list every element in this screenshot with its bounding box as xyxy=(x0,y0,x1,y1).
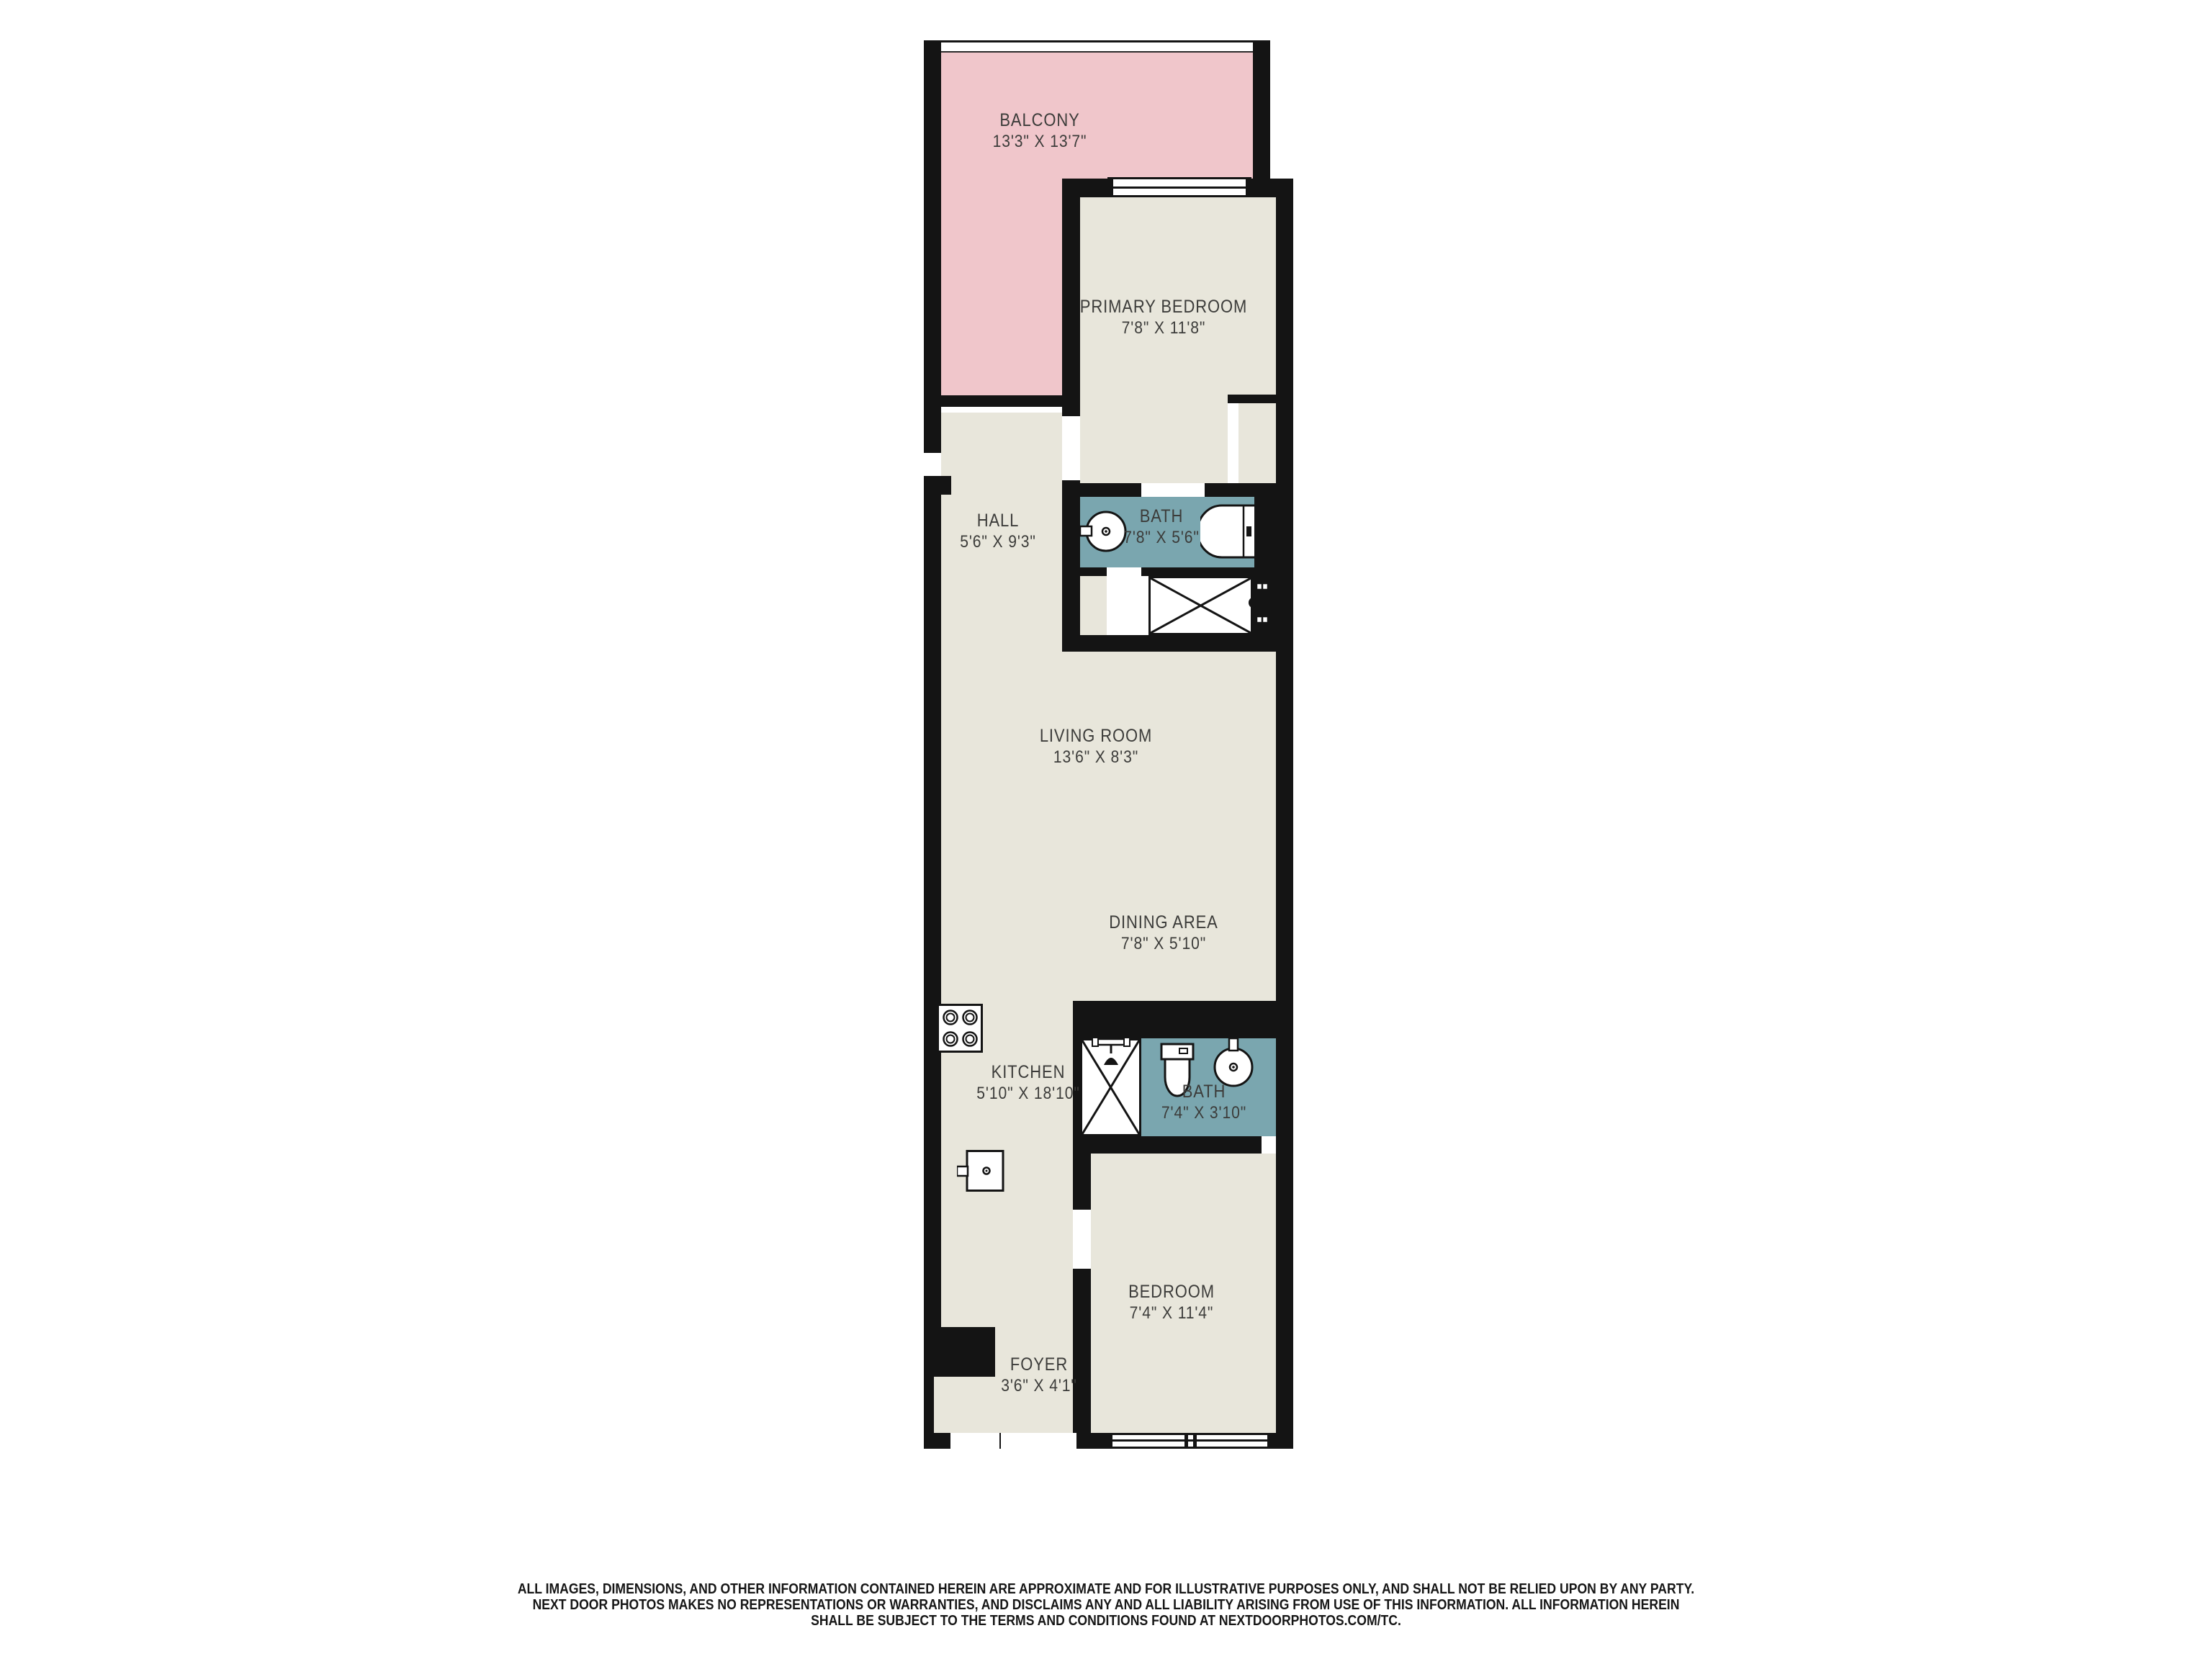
window-mullion xyxy=(1193,1433,1197,1449)
stove-icon xyxy=(937,1004,983,1053)
disclaimer: ALL IMAGES, DIMENSIONS, AND OTHER INFORM… xyxy=(504,1581,1708,1629)
balcony-label: BALCONY 13'3" X 13'7" xyxy=(993,109,1087,153)
room-name: BATH xyxy=(1123,505,1200,527)
room-dims: 13'6" X 8'3" xyxy=(1040,747,1152,768)
opening-bottom-left xyxy=(950,1433,999,1449)
wall-bath2-bottom xyxy=(1080,1136,1276,1154)
door-opening-bedroom1-bath1 xyxy=(1141,483,1205,497)
sliding-door-window xyxy=(1107,177,1251,197)
door-opening-corridor-bedroom xyxy=(1073,1210,1091,1269)
shower-icon xyxy=(1080,1038,1141,1136)
bath1-label: BATH 7'8" X 5'6" xyxy=(1123,505,1200,549)
balcony-railing xyxy=(941,40,1253,53)
balcony-floor-arm xyxy=(941,179,1062,395)
wall-balcony-right xyxy=(1253,40,1270,179)
wall-hall-stub xyxy=(941,476,951,495)
bedroom-window xyxy=(1109,1433,1271,1449)
room-dims: 13'3" X 13'7" xyxy=(993,131,1087,153)
closet-row-passage xyxy=(1107,576,1141,635)
balcony-floor xyxy=(941,53,1253,179)
room-name: HALL xyxy=(960,510,1036,531)
wall-bath1-right xyxy=(1254,483,1293,576)
hall-label: HALL 5'6" X 9'3" xyxy=(960,510,1036,553)
room-dims: 7'4" X 3'10" xyxy=(1161,1102,1246,1124)
linen-closet-icon xyxy=(1148,576,1253,635)
room-dims: 7'4" X 11'4" xyxy=(1128,1303,1215,1324)
closet-nook-floor xyxy=(1079,576,1107,635)
wall-hall-right xyxy=(1062,179,1080,652)
disclaimer-line-1: ALL IMAGES, DIMENSIONS, AND OTHER INFORM… xyxy=(504,1581,1708,1597)
window-mullion xyxy=(1184,1433,1188,1449)
floorplan: BALCONY 13'3" X 13'7" PRIMARY BEDROOM 7'… xyxy=(924,40,1294,1449)
door-opening-hall-bedroom1 xyxy=(1062,416,1080,480)
disclaimer-line-3: SHALL BE SUBJECT TO THE TERMS AND CONDIT… xyxy=(504,1613,1708,1629)
wall-bath2-top xyxy=(1073,1001,1276,1038)
shower-head-icon xyxy=(1089,1038,1133,1069)
room-dims: 5'10" X 18'10" xyxy=(976,1083,1079,1105)
bathtub-icon xyxy=(1200,504,1255,559)
wall-bath1-bottom xyxy=(1062,567,1254,576)
wall-balcony-bottom xyxy=(941,395,1062,407)
room-dims: 7'8" X 5'10" xyxy=(1109,933,1218,955)
primary-bedroom-floor xyxy=(1079,197,1276,483)
foyer-label: FOYER 3'6" X 4'1" xyxy=(1001,1354,1077,1397)
kitchen-sink-icon xyxy=(957,1150,1004,1192)
door-opening-balcony-hall xyxy=(941,407,1062,413)
room-name: FOYER xyxy=(1001,1354,1077,1375)
door-opening-bath1-closetrow xyxy=(1107,567,1141,576)
room-name: DINING AREA xyxy=(1109,912,1218,933)
disclaimer-line-2: NEXT DOOR PHOTOS MAKES NO REPRESENTATION… xyxy=(504,1597,1708,1613)
wall-left-outer xyxy=(924,40,941,1449)
room-name: LIVING ROOM xyxy=(1040,725,1152,747)
door-opening-bath2 xyxy=(1262,1136,1276,1154)
room-name: BATH xyxy=(1161,1081,1246,1102)
wall-closet-bottom xyxy=(1062,635,1293,652)
room-name: BEDROOM xyxy=(1128,1281,1215,1303)
room-dims: 3'6" X 4'1" xyxy=(1001,1375,1077,1397)
living-room-label: LIVING ROOM 13'6" X 8'3" xyxy=(1040,725,1152,768)
foyer-notch-floor xyxy=(934,1377,985,1433)
room-dims: 7'8" X 5'6" xyxy=(1123,527,1200,549)
room-dims: 7'8" X 11'8" xyxy=(1080,318,1247,339)
room-name: PRIMARY BEDROOM xyxy=(1080,296,1247,318)
dining-area-label: DINING AREA 7'8" X 5'10" xyxy=(1109,912,1218,955)
room-dims: 5'6" X 9'3" xyxy=(960,531,1036,553)
primary-bedroom-label: PRIMARY BEDROOM 7'8" X 11'8" xyxy=(1080,296,1247,339)
room-name: KITCHEN xyxy=(976,1061,1079,1083)
bath2-label: BATH 7'4" X 3'10" xyxy=(1161,1081,1246,1124)
kitchen-label: KITCHEN 5'10" X 18'10" xyxy=(976,1061,1079,1105)
wall-entry-block xyxy=(934,1327,995,1377)
door-pull-icon xyxy=(1246,579,1275,628)
wall-closet-stub xyxy=(1228,395,1276,403)
bedroom-label: BEDROOM 7'4" X 11'4" xyxy=(1128,1281,1215,1324)
room-name: BALCONY xyxy=(993,109,1087,131)
entry-door-opening xyxy=(1001,1433,1076,1449)
bath-sink-icon xyxy=(1080,505,1128,557)
wall-right-outer xyxy=(1276,179,1293,1449)
door-opening-bedroom1-closet xyxy=(1228,403,1238,483)
door-opening-hall-left xyxy=(924,453,941,476)
